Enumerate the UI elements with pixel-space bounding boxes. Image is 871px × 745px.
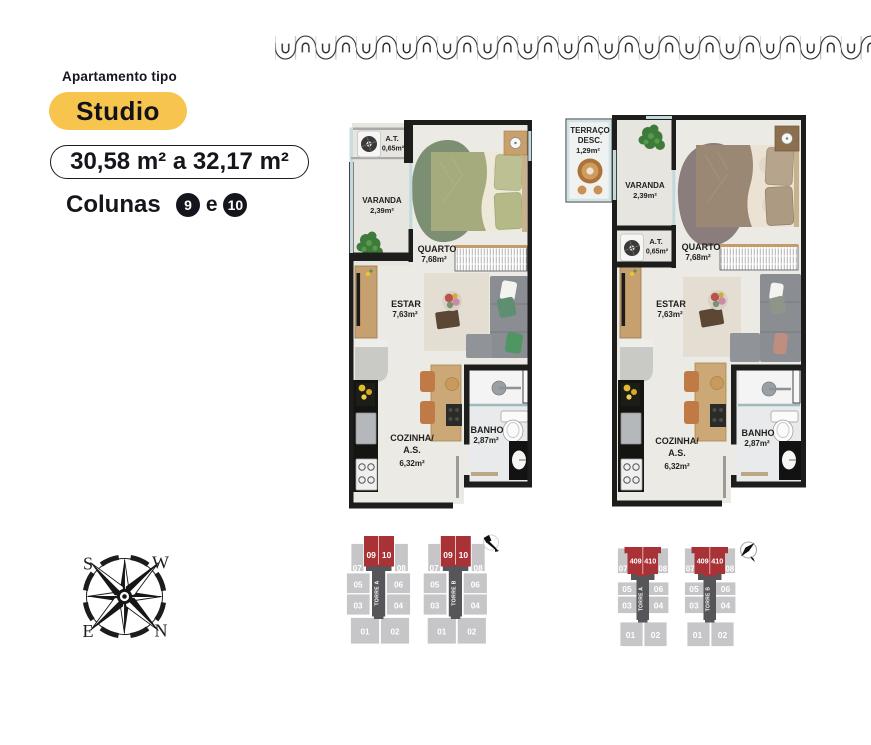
- svg-text:2,39m²: 2,39m²: [370, 206, 394, 215]
- svg-text:A.T.: A.T.: [649, 237, 662, 246]
- svg-text:ESTAR: ESTAR: [391, 299, 421, 309]
- svg-text:6,32m²: 6,32m²: [399, 459, 425, 468]
- svg-text:S: S: [83, 554, 93, 574]
- svg-text:7,63m²: 7,63m²: [392, 310, 418, 319]
- svg-text:VARANDA: VARANDA: [625, 181, 665, 190]
- svg-text:1,29m²: 1,29m²: [576, 146, 600, 155]
- svg-text:N: N: [155, 621, 168, 641]
- svg-text:ESTAR: ESTAR: [656, 299, 686, 309]
- svg-text:BANHO: BANHO: [471, 425, 504, 435]
- svg-text:COZINHA/: COZINHA/: [655, 436, 699, 446]
- svg-text:DESC.: DESC.: [578, 136, 602, 145]
- svg-text:E: E: [83, 621, 94, 641]
- svg-text:QUARTO: QUARTO: [418, 244, 457, 254]
- svg-text:7,68m²: 7,68m²: [421, 255, 447, 264]
- svg-text:7,68m²: 7,68m²: [685, 253, 711, 262]
- svg-text:2,87m²: 2,87m²: [744, 439, 770, 448]
- svg-text:A.S.: A.S.: [668, 448, 686, 458]
- svg-text:7,63m²: 7,63m²: [657, 310, 683, 319]
- svg-text:BANHO: BANHO: [742, 428, 775, 438]
- svg-text:W: W: [152, 553, 169, 573]
- svg-text:6,32m²: 6,32m²: [664, 462, 690, 471]
- svg-text:A.S.: A.S.: [403, 445, 421, 455]
- svg-text:0,65m²: 0,65m²: [646, 249, 669, 256]
- svg-text:TORRE B: TORRE B: [452, 580, 458, 605]
- svg-text:0,65m²: 0,65m²: [382, 146, 405, 153]
- svg-text:COZINHA/: COZINHA/: [390, 433, 434, 443]
- svg-text:TERRAÇO: TERRAÇO: [570, 126, 610, 135]
- svg-text:VARANDA: VARANDA: [362, 196, 402, 205]
- svg-text:2,87m²: 2,87m²: [473, 436, 499, 445]
- svg-text:TORRE B: TORRE B: [706, 587, 712, 612]
- svg-text:2,39m²: 2,39m²: [633, 191, 657, 200]
- svg-text:QUARTO: QUARTO: [682, 242, 721, 252]
- svg-text:A.T.: A.T.: [385, 134, 398, 143]
- svg-text:TORRE A: TORRE A: [639, 587, 645, 611]
- svg-text:TORRE A: TORRE A: [375, 580, 381, 605]
